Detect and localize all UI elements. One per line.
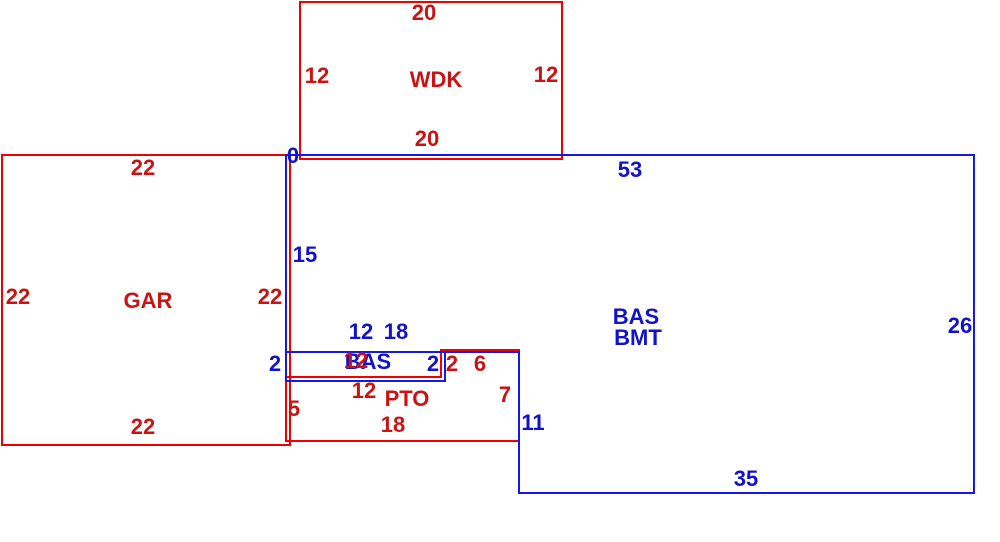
wdk-dim-left-label: 12 — [305, 65, 329, 87]
bas-bmt-edge-step-vertical[interactable] — [518, 351, 520, 494]
bas-bmt-edge-top[interactable] — [285, 154, 975, 156]
bas-bmt-dim-step-horizontal-label: 18 — [384, 321, 408, 343]
bas-strip-dim-left-label: 2 — [269, 353, 281, 375]
bas-bmt-dim-bottom-label: 35 — [734, 468, 758, 490]
pto-area-label: PTO — [385, 388, 430, 410]
bas-bmt-dim-left-label: 15 — [293, 244, 317, 266]
bas-bmt-dim-step-vertical-label: 11 — [521, 412, 544, 434]
gar-dim-left-label: 22 — [6, 286, 30, 308]
pto-dim-right-label: 7 — [499, 384, 511, 406]
pto-dim-top-label: 12 — [352, 380, 376, 402]
bas-bmt-area-label-line2: BMT — [614, 327, 662, 349]
gar-dim-bottom-label: 22 — [131, 416, 155, 438]
bas-bmt-edge-left[interactable] — [285, 154, 287, 353]
gar-dim-top-label: 22 — [131, 157, 155, 179]
pto-edge-left[interactable] — [285, 377, 287, 442]
pto-dim-step-up-label: 2 — [446, 353, 458, 375]
pto-dim-step-right-label: 6 — [474, 353, 486, 375]
pto-dim-top-overlay-label: 12 — [344, 350, 368, 372]
bas-bmt-dim-top-label: 53 — [618, 159, 642, 181]
wdk-dim-right-label: 12 — [534, 64, 558, 86]
bas-bmt-origin-marker: 0 — [287, 145, 299, 167]
gar-dim-right-label: 22 — [258, 286, 282, 308]
wdk-area-label: WDK — [410, 69, 463, 91]
sketch-canvas[interactable]: 20 12 WDK 12 20 22 22 GAR 22 22 0 53 15 … — [0, 0, 1000, 542]
wdk-dim-bottom-label: 20 — [415, 128, 439, 150]
bas-strip-dim-top-label: 12 — [349, 321, 373, 343]
bas-bmt-dim-right-label: 26 — [948, 315, 972, 337]
wdk-dim-top-label: 20 — [412, 2, 436, 24]
gar-area-label: GAR — [124, 290, 173, 312]
pto-dim-bottom-label: 18 — [381, 414, 405, 436]
bas-bmt-edge-right[interactable] — [973, 154, 975, 494]
pto-dim-left-label: 5 — [288, 398, 300, 420]
bas-strip-dim-right-label: 2 — [427, 353, 439, 375]
pto-edge-bottom[interactable] — [285, 440, 520, 442]
bas-bmt-edge-bottom[interactable] — [518, 492, 975, 494]
